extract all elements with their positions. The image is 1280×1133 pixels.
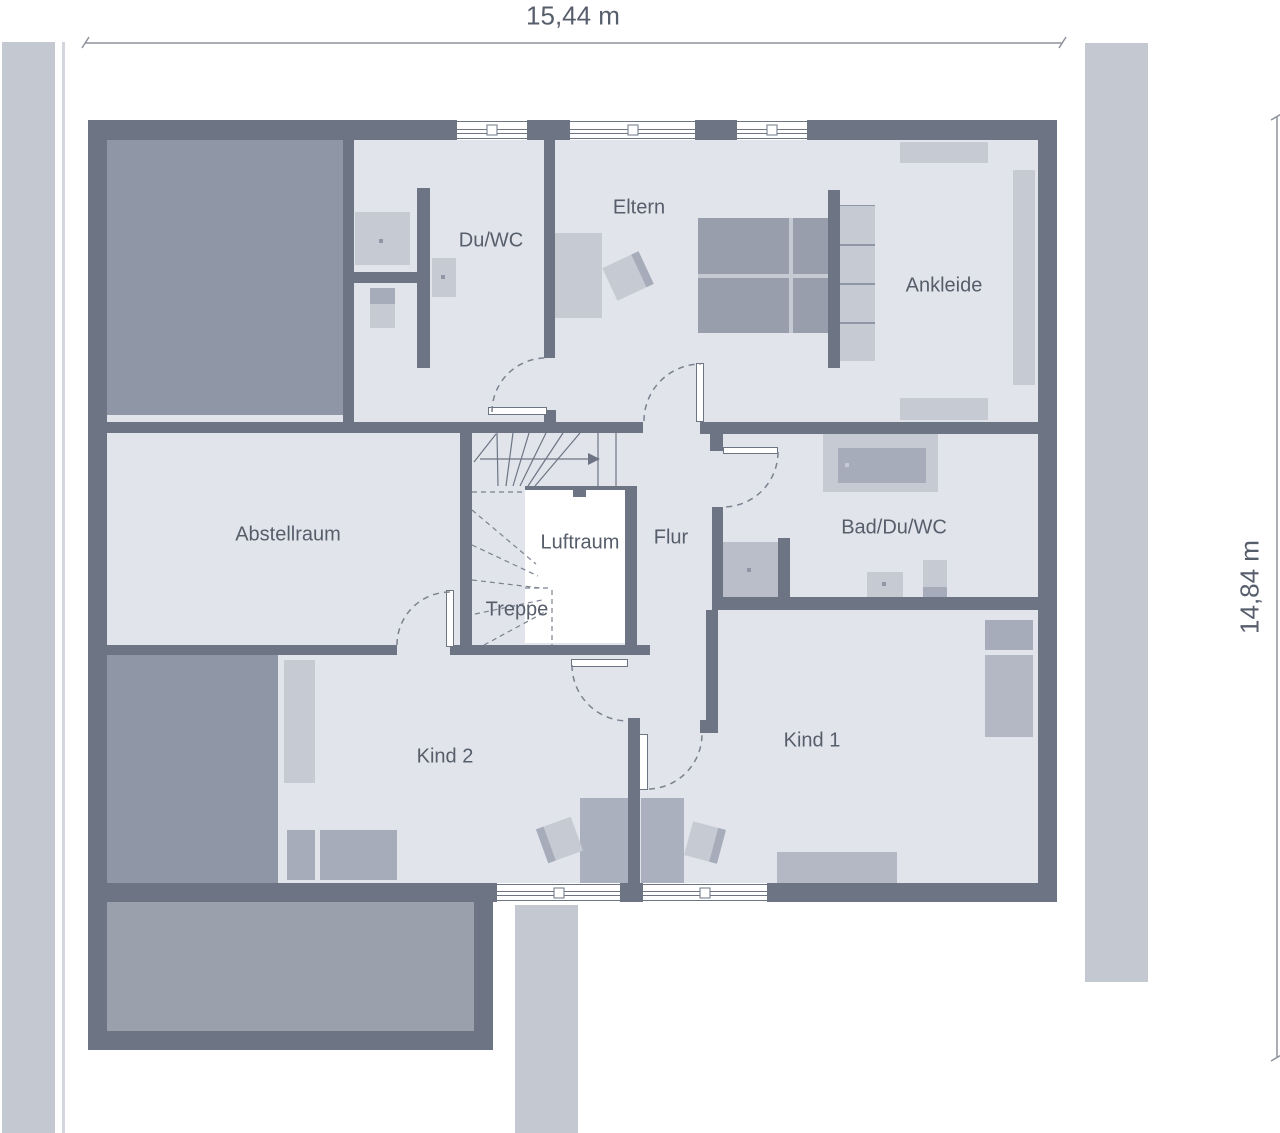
wall-roofspace-duwc <box>343 140 354 432</box>
roof-space-top-left <box>107 140 343 415</box>
ankleide-shelf-line <box>840 322 875 324</box>
wall-luftraum-right <box>625 486 637 655</box>
wall-mid-right <box>700 422 1038 434</box>
wall-bad-bottom <box>712 597 1038 610</box>
walkway-strip-bottom <box>515 905 578 1133</box>
duwc-toilet-tank <box>370 288 395 304</box>
eltern-bed-divider-h <box>698 274 828 278</box>
kind1-wardrobe <box>985 655 1033 737</box>
wall-eltern-ankleide <box>828 190 840 368</box>
wall-stair-bottom <box>460 645 650 655</box>
door-eltern <box>696 363 704 422</box>
dimension-line-right <box>1271 113 1280 1061</box>
room-label-eltern: Eltern <box>613 197 665 220</box>
dimension-width-label: 15,44 m <box>526 1 620 32</box>
window-top-3 <box>737 121 807 139</box>
terrace-floor <box>107 902 474 1031</box>
kind1-bed <box>777 852 897 883</box>
kind2-desk <box>580 798 628 883</box>
wall-bad-left-stub <box>710 433 723 451</box>
kind1-desk <box>641 798 684 883</box>
roof-space-left <box>107 655 278 883</box>
room-label-abstellraum: Abstellraum <box>235 524 341 547</box>
room-label-treppe: Treppe <box>486 599 549 622</box>
kind1-wardrobe-top <box>985 620 1033 650</box>
wall-bottom <box>88 883 497 902</box>
wall-stair-left <box>460 433 472 655</box>
wall-kind1-stub <box>700 720 718 733</box>
duwc-shower-partition-v <box>417 188 430 368</box>
eltern-dresser <box>555 233 602 318</box>
wall-top <box>807 120 1057 140</box>
wall-top <box>695 120 737 140</box>
wall-mid-left <box>107 422 643 433</box>
wall-shower-stub <box>778 538 790 610</box>
room-label-bad-du-wc: Bad/Du/WC <box>841 517 947 540</box>
door-kind1 <box>639 734 648 790</box>
room-label-luftraum: Luftraum <box>541 532 620 555</box>
dimension-line-top <box>82 37 1066 48</box>
bath-shower-drain-dot <box>747 568 751 572</box>
floor-plan: 15,44 m 14,84 m Du/WC Eltern Ankleide Ab… <box>0 0 1280 1133</box>
window-marker <box>700 887 711 898</box>
wall-bottom <box>767 883 1057 902</box>
wall-kind1-left <box>706 610 718 733</box>
wall-top <box>527 120 570 140</box>
room-label-flur: Flur <box>654 527 688 550</box>
property-boundary-line <box>62 42 65 1133</box>
window-top-2 <box>570 121 695 139</box>
dimension-height-label: 14,84 m <box>1235 540 1266 634</box>
wall-top <box>88 120 457 140</box>
bath-toilet-base <box>923 587 947 597</box>
window-marker <box>767 125 778 136</box>
side-strip-left <box>2 42 55 1133</box>
room-label-kind-2: Kind 2 <box>417 746 474 769</box>
duwc-shower-partition-h <box>353 272 417 283</box>
window-marker <box>627 125 638 136</box>
room-label-ankleide: Ankleide <box>906 275 983 298</box>
kind2-bed <box>320 830 397 880</box>
door-kind2 <box>571 659 628 667</box>
wall-bad-left <box>712 507 723 610</box>
room-label-du-wc: Du/WC <box>459 230 523 253</box>
duwc-basin-drain-dot <box>379 239 383 243</box>
bath-tub-drain-dot <box>845 463 849 467</box>
wall-right <box>1038 120 1057 902</box>
kind2-bed-head <box>287 830 315 880</box>
bath-tub <box>838 448 926 483</box>
ankleide-wardrobe-bottom <box>900 398 988 420</box>
window-bottom-2 <box>643 884 767 901</box>
wall-left <box>88 120 107 1050</box>
door-bad <box>723 447 778 454</box>
window-top-1 <box>457 121 527 139</box>
wall-duwc-eltern <box>544 140 555 358</box>
ankleide-shelf-line <box>840 283 875 285</box>
bath-sink-drain-dot <box>882 582 886 586</box>
ankleide-wardrobe-right <box>1013 170 1035 385</box>
room-label-kind-1: Kind 1 <box>784 730 841 753</box>
bath-toilet <box>923 560 947 590</box>
door-abstellraum <box>446 590 454 647</box>
window-marker <box>487 125 498 136</box>
window-marker <box>553 887 564 898</box>
ankleide-wardrobe-top <box>900 142 988 163</box>
duwc-shower-drain-dot <box>441 275 445 279</box>
window-bottom-1 <box>497 884 620 901</box>
door-duwc <box>488 407 547 415</box>
wall-abstellraum-bottom <box>107 645 397 655</box>
luftraum-corner-block <box>573 486 586 497</box>
side-strip-right <box>1085 43 1148 982</box>
kind2-wardrobe <box>284 660 315 783</box>
ankleide-shelf-line <box>840 244 875 246</box>
